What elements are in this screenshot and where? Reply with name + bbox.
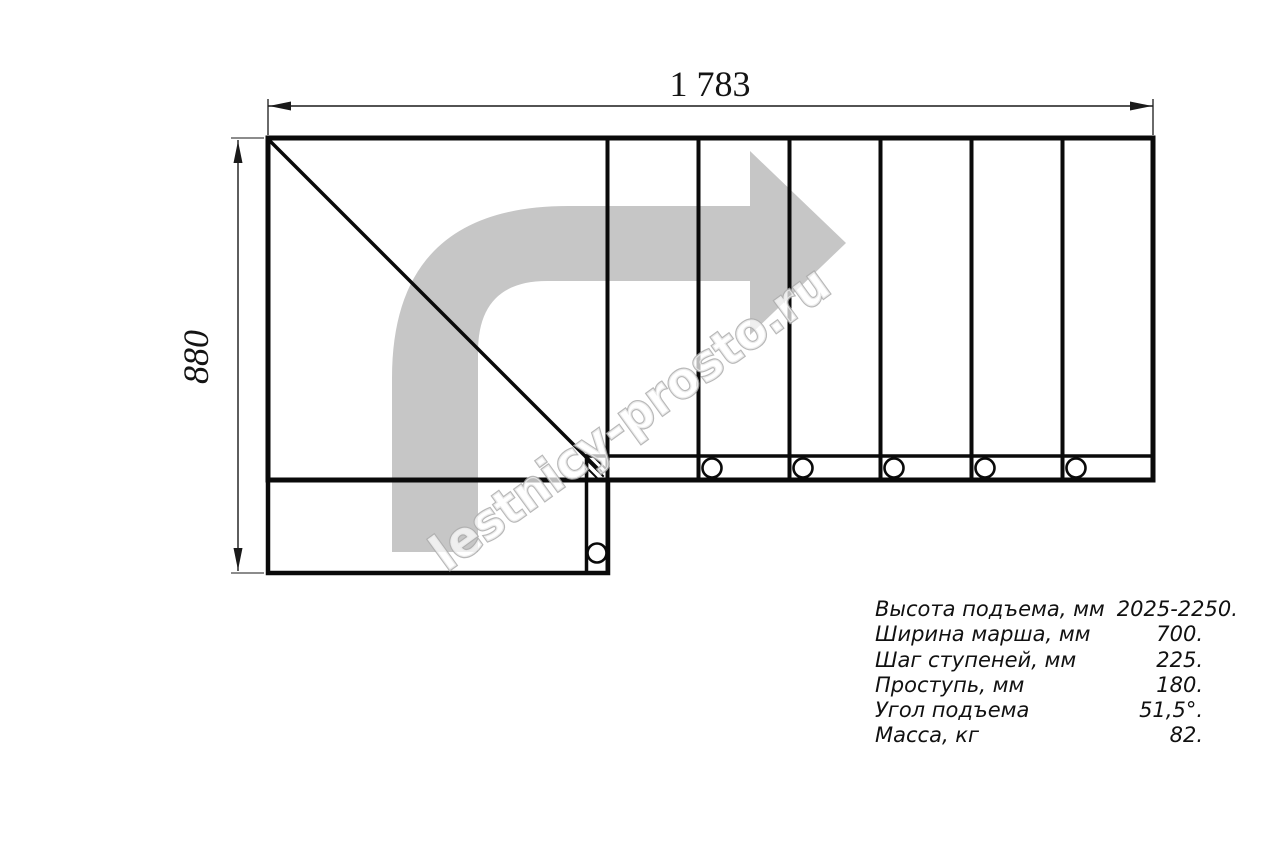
spec-row: Проступь, мм 180. <box>875 673 1203 698</box>
spec-label: Проступь, мм <box>875 673 1024 698</box>
spec-row: Масса, кг 82. <box>875 723 1203 748</box>
spec-label: Шаг ступеней, мм <box>875 648 1076 673</box>
dimension-arrowhead <box>269 102 291 111</box>
spec-value: 2025-2250. <box>1117 597 1238 622</box>
direction-arrow <box>392 151 846 552</box>
support-post-circles <box>588 459 1086 563</box>
spec-row: Ширина марша, мм 700. <box>875 622 1203 647</box>
left-dimension-label: 880 <box>176 330 216 384</box>
dimension-arrowhead <box>234 548 243 570</box>
spec-row: Шаг ступеней, мм 225. <box>875 648 1203 673</box>
spec-value: 700. <box>1156 622 1203 647</box>
spec-row: Угол подъема 51,5°. <box>875 698 1203 723</box>
post-circle <box>885 459 904 478</box>
post-circle <box>1067 459 1086 478</box>
top-dimension-label: 1 783 <box>670 64 751 104</box>
post-circle <box>794 459 813 478</box>
spec-value: 82. <box>1170 723 1203 748</box>
spec-value: 225. <box>1156 648 1203 673</box>
spec-value: 180. <box>1156 673 1203 698</box>
stair-plan-page: 1 783 880 lestnicy-prosto.ru Высота подъ… <box>0 0 1280 853</box>
spec-row: Высота подъема, мм 2025-2250. <box>875 597 1203 622</box>
spec-label: Масса, кг <box>875 723 979 748</box>
specs-table: Высота подъема, мм 2025-2250. Ширина мар… <box>875 597 1203 749</box>
post-circle <box>588 544 607 563</box>
spec-label: Ширина марша, мм <box>875 622 1091 647</box>
spec-label: Высота подъема, мм <box>875 597 1105 622</box>
post-circle <box>976 459 995 478</box>
dimension-arrowhead <box>1130 102 1152 111</box>
spec-label: Угол подъема <box>875 698 1029 723</box>
spec-value: 51,5°. <box>1139 698 1203 723</box>
dimension-arrowhead <box>234 141 243 163</box>
post-circle <box>703 459 722 478</box>
